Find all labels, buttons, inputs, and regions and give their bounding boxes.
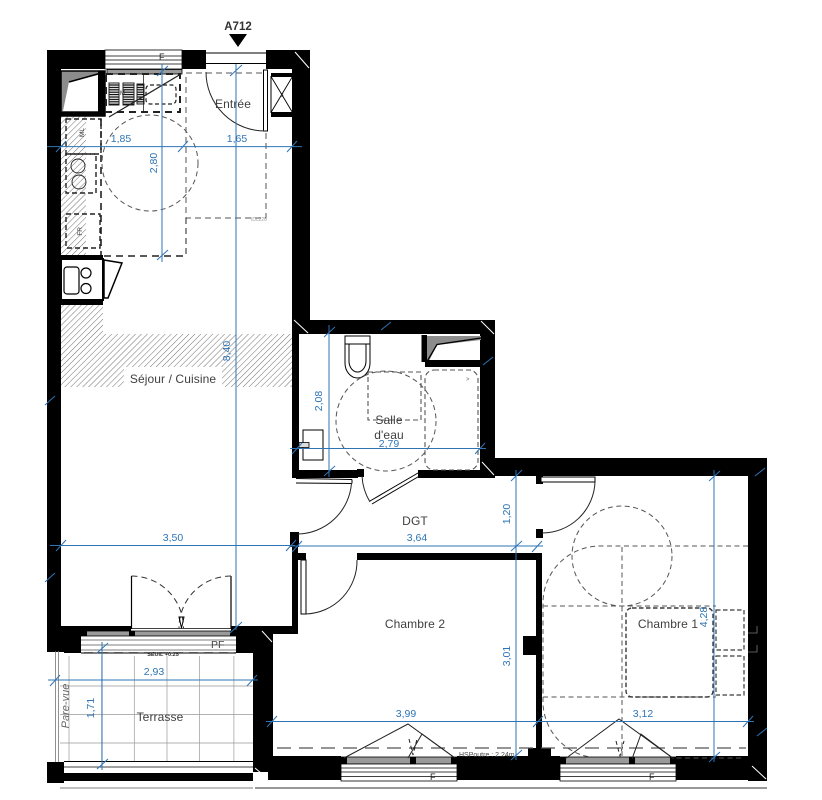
svg-text:>: > — [466, 377, 470, 383]
svg-text:DGT: DGT — [402, 514, 428, 528]
svg-text:Séjour / Cuisine: Séjour / Cuisine — [130, 372, 217, 386]
svg-text:Salle: Salle — [375, 413, 402, 427]
svg-text:4,28: 4,28 — [698, 607, 710, 628]
svg-text:1,65: 1,65 — [227, 133, 248, 145]
svg-text:Entrée: Entrée — [215, 97, 251, 111]
svg-text:2,79: 2,79 — [379, 438, 400, 450]
svg-text:1,71: 1,71 — [85, 698, 97, 719]
svg-text:Terrasse: Terrasse — [137, 710, 184, 724]
svg-text:IDc220: IDc220 — [251, 217, 267, 223]
svg-text:2,08: 2,08 — [313, 391, 325, 412]
svg-text:M: M — [120, 91, 125, 97]
svg-text:PF: PF — [211, 639, 224, 651]
svg-text:3: 3 — [280, 93, 283, 99]
svg-text:3,99: 3,99 — [396, 708, 417, 720]
svg-text:2,80: 2,80 — [148, 153, 160, 174]
svg-text:F: F — [159, 52, 165, 62]
svg-text:8,40: 8,40 — [221, 341, 233, 362]
svg-text:HSPoutre : 2.24m: HSPoutre : 2.24m — [459, 752, 515, 759]
svg-text:3,12: 3,12 — [633, 708, 654, 720]
svg-text:FR: FR — [77, 227, 84, 236]
svg-text:1,85: 1,85 — [111, 133, 132, 145]
svg-text:Chambre 2: Chambre 2 — [385, 617, 445, 631]
svg-text:3,01: 3,01 — [501, 646, 513, 667]
svg-text:F: F — [430, 772, 436, 782]
svg-text:Pare-vue: Pare-vue — [60, 684, 72, 729]
svg-text:F: F — [649, 772, 655, 782]
svg-text:A712: A712 — [224, 21, 252, 33]
svg-text:1,20: 1,20 — [501, 504, 513, 525]
svg-text:Chambre 1: Chambre 1 — [638, 617, 698, 631]
svg-text:3,50: 3,50 — [163, 532, 184, 544]
svg-text:ML: ML — [79, 128, 86, 137]
svg-text:3,64: 3,64 — [407, 532, 428, 544]
svg-text:2,93: 2,93 — [144, 666, 165, 678]
